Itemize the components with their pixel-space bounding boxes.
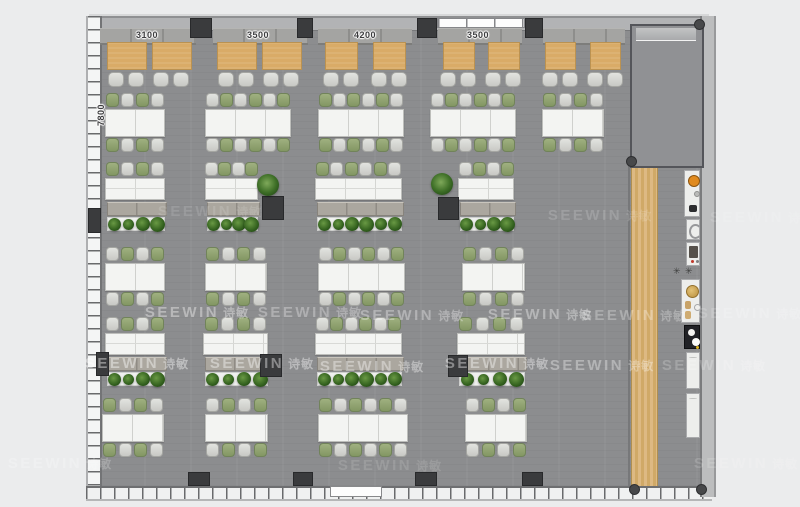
annotation-layer: 31003500420035007800 — [0, 0, 800, 507]
dimension-label: 3100 — [136, 30, 158, 40]
floor-plan-canvas: ✳✳ SEEWIN诗敏SEEWIN诗敏SEEWIN诗敏SEEWIN诗敏SEEWI… — [0, 0, 800, 507]
dimension-label: 4200 — [354, 30, 376, 40]
dimension-label: 3500 — [467, 30, 489, 40]
dimension-label: 3500 — [247, 30, 269, 40]
dimension-label-vertical: 7800 — [96, 104, 106, 126]
